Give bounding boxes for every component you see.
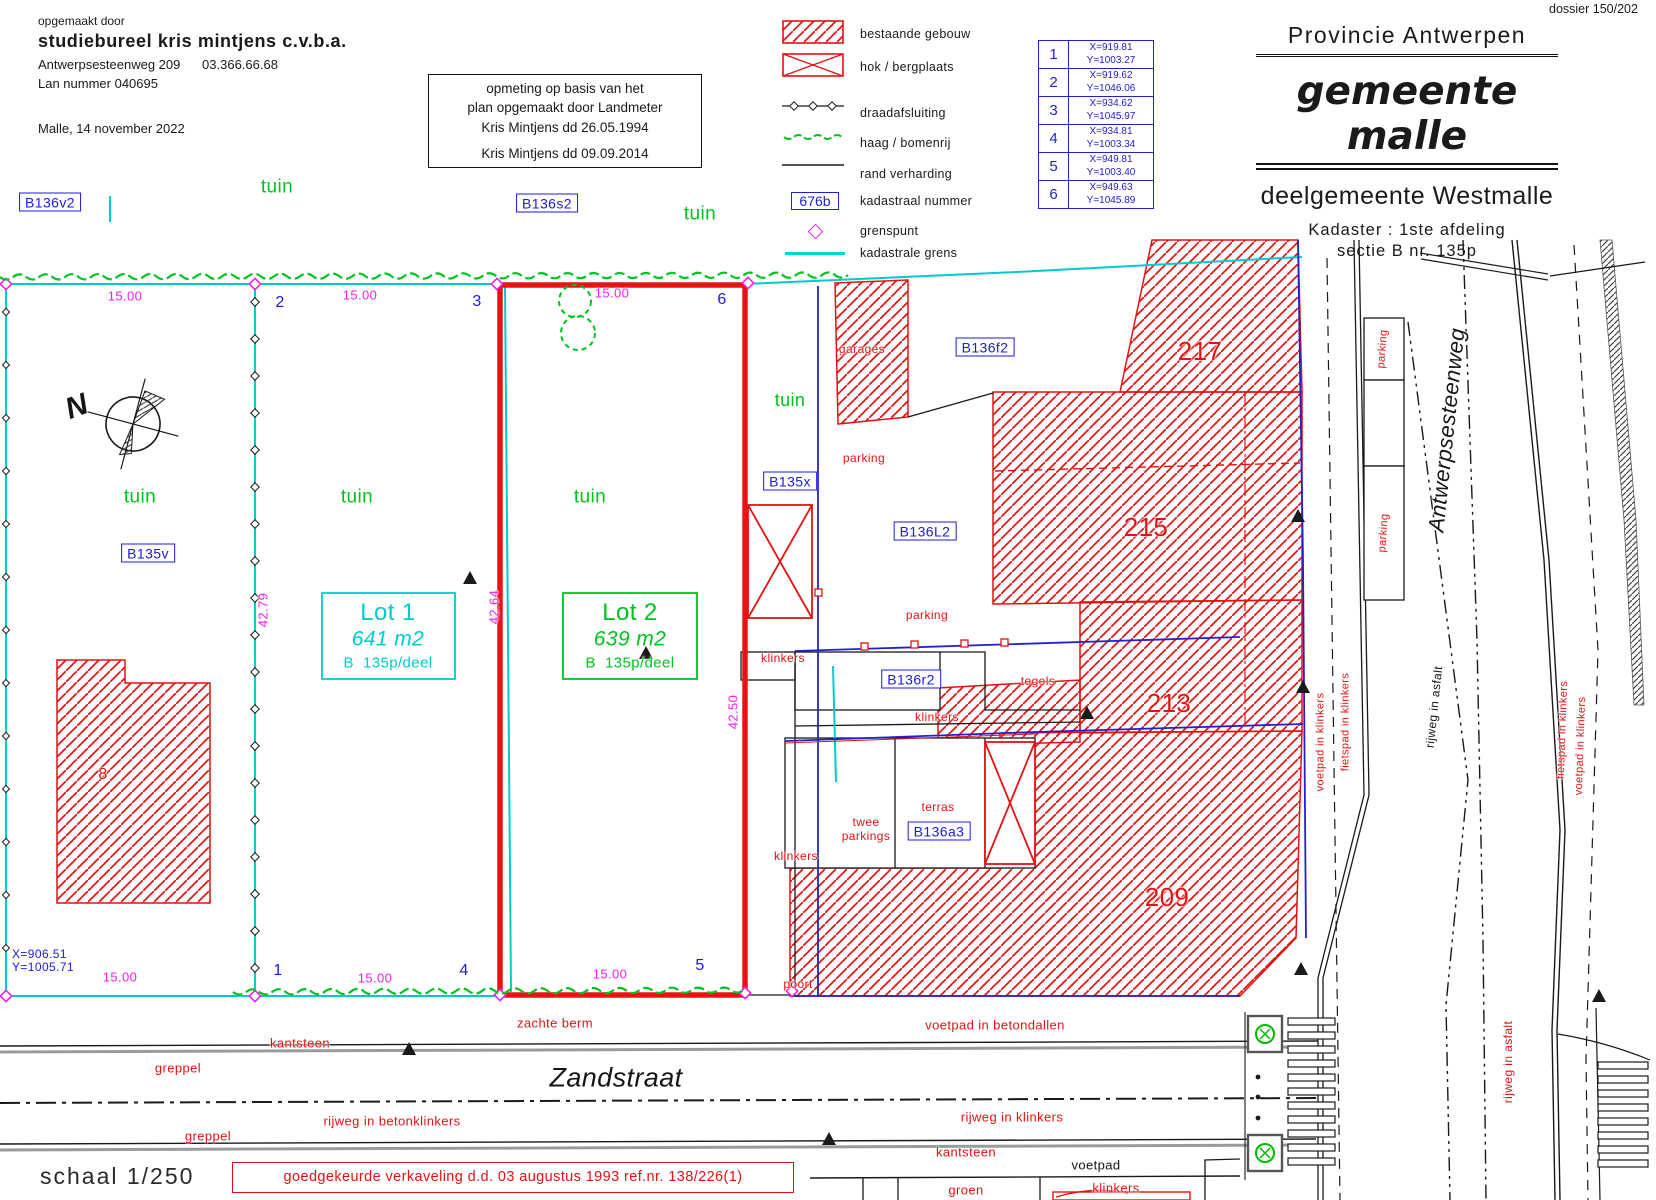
submunicipality-title: deelgemeente Westmalle xyxy=(1256,182,1558,211)
coord-y: Y=1003.40 xyxy=(1071,167,1151,180)
label-pt-4: 4 xyxy=(459,963,468,979)
coord-y: Y=1003.34 xyxy=(1071,139,1151,152)
label-b135v: B135v xyxy=(121,544,175,563)
wire-fence-mark xyxy=(2,785,9,792)
cadastral-line-symbol xyxy=(785,252,845,255)
label-dim-top-1: 15.00 xyxy=(108,290,143,303)
label-greppel-1: greppel xyxy=(155,1062,201,1075)
wire-fence-mark xyxy=(251,298,259,306)
point-number: 5 xyxy=(1039,153,1069,181)
coordinate-row: 5X=949.81Y=1003.40 xyxy=(1039,153,1154,181)
wire-fence-mark xyxy=(251,705,259,713)
crosswalk-bar xyxy=(1598,1062,1648,1069)
point-coordinates: X=949.63Y=1045.89 xyxy=(1069,181,1154,209)
coordinate-row: 3X=934.62Y=1045.97 xyxy=(1039,97,1154,125)
wire-fence-mark xyxy=(251,372,259,380)
label-pt-2: 2 xyxy=(275,295,284,311)
legend-item-hatched-box: bestaande gebouw xyxy=(782,20,970,48)
hatched-buildings xyxy=(57,240,1302,996)
label-nr-215: 215 xyxy=(1124,514,1169,540)
cadastre-line2: sectie B nr. 135p xyxy=(1256,242,1558,261)
label-pt-6: 6 xyxy=(717,292,726,308)
survey-note-box: opmeting op basis van het plan opgemaakt… xyxy=(428,74,702,168)
wire-fence-mark xyxy=(2,944,9,951)
label-tuin-parcel-left: tuin xyxy=(124,488,156,507)
crosswalk-bar xyxy=(1288,1144,1335,1151)
wire-fence-mark xyxy=(2,573,9,580)
point-coordinates: X=919.81Y=1003.27 xyxy=(1069,41,1154,69)
wire-fence-mark xyxy=(2,732,9,739)
cadastral-line-icon xyxy=(782,252,848,255)
author-address: Antwerpsesteenweg 209 03.366.66.68 xyxy=(38,57,347,72)
label-dim-4264: 42.64 xyxy=(488,590,501,625)
coordinate-row: 2X=919.62Y=1046.06 xyxy=(1039,69,1154,97)
wire-fence-mark xyxy=(2,626,9,633)
point-coordinates: X=934.62Y=1045.97 xyxy=(1069,97,1154,125)
label-dim-4279: 42.79 xyxy=(257,593,270,628)
crosswalk-bar xyxy=(1288,1130,1335,1137)
wire-fence-mark xyxy=(251,742,259,750)
coord-x: X=934.62 xyxy=(1071,98,1151,111)
label-voetpad-betondallen: voetpad in betondallen xyxy=(925,1019,1065,1032)
crosswalk-bar xyxy=(1288,1046,1335,1053)
wire-fence-mark xyxy=(251,520,259,528)
crosswalk-bar xyxy=(1288,1060,1335,1067)
label-klinkers-strip-1: klinkers xyxy=(761,652,805,664)
approval-note: goedgekeurde verkaveling d.d. 03 augustu… xyxy=(232,1162,794,1193)
crosswalk-bar xyxy=(1288,1158,1335,1165)
coord-x: X=919.81 xyxy=(1071,42,1151,55)
label-klinkers-bottom: klinkers xyxy=(1092,1182,1139,1195)
legend-item-cadastral-line: kadastrale grens xyxy=(782,239,957,267)
label-bldg-8: 8 xyxy=(98,767,107,783)
label-zachte-berm: zachte berm xyxy=(517,1017,593,1030)
coord-x: X=919.62 xyxy=(1071,70,1151,83)
label-nr-209: 209 xyxy=(1145,884,1190,910)
label-lot2-area: 639 m2 xyxy=(594,629,666,650)
label-lot2-parcel: B 135p/deel xyxy=(585,656,674,671)
parcel-number-example: 676b xyxy=(791,192,838,210)
wire-fence-mark xyxy=(251,668,259,676)
label-klinkers-yard: klinkers xyxy=(915,711,959,723)
coordinate-row: 4X=934.81Y=1003.34 xyxy=(1039,125,1154,153)
crosswalk-bar xyxy=(1288,1102,1335,1109)
author-intro: opgemaakt door xyxy=(38,14,347,28)
label-dim-top-3: 15.00 xyxy=(595,287,630,300)
dossier-number: dossier 150/202 xyxy=(1549,2,1656,16)
wire-fence-mark xyxy=(251,409,259,417)
label-nr-217: 217 xyxy=(1178,338,1223,364)
crosswalk-bar xyxy=(1598,1132,1648,1139)
wire-fence-mark xyxy=(251,927,259,935)
wire-fence-mark xyxy=(2,414,9,421)
point-coordinates: X=934.81Y=1003.34 xyxy=(1069,125,1154,153)
boundary-point-icon xyxy=(782,226,848,237)
label-kantsteen-left: kantsteen xyxy=(270,1037,330,1050)
legend-item-label: grenspunt xyxy=(860,224,918,238)
label-lot1-title: Lot 1 xyxy=(360,601,415,625)
legend-item-label: kadastrale grens xyxy=(860,246,957,260)
point-coordinates: X=919.62Y=1046.06 xyxy=(1069,69,1154,97)
legend-item-label: rand verharding xyxy=(860,167,952,181)
legend-item-edge-line: rand verharding xyxy=(782,160,952,188)
wire-fence-mark xyxy=(251,779,259,787)
wire-fence-mark xyxy=(2,679,9,686)
point-number: 1 xyxy=(1039,41,1069,69)
coord-y: Y=1045.97 xyxy=(1071,111,1151,124)
label-b136v2: B136v2 xyxy=(19,193,81,212)
crosswalk-bar xyxy=(1598,1118,1648,1125)
north-compass xyxy=(75,366,190,481)
wire-fence-mark xyxy=(251,483,259,491)
label-zandstraat: Zandstraat xyxy=(549,1065,682,1092)
label-greppel-2: greppel xyxy=(185,1130,231,1143)
point-number: 4 xyxy=(1039,125,1069,153)
label-b136s2: B136s2 xyxy=(516,194,578,213)
crosswalk-bar xyxy=(1598,1160,1648,1167)
coordinate-table: 1X=919.81Y=1003.272X=919.62Y=1046.063X=9… xyxy=(1038,40,1154,209)
legend-item-crossed-box: hok / bergplaats xyxy=(782,53,954,81)
label-parking-1: parking xyxy=(843,452,885,464)
legend-item-hedge-line: haag / bomenrij xyxy=(782,129,951,157)
legend-item-label: draadafsluiting xyxy=(860,106,946,120)
label-tuin-lot1: tuin xyxy=(341,488,373,507)
coord-y: Y=1045.89 xyxy=(1071,195,1151,208)
survey-note-line: plan opgemaakt door Landmeter xyxy=(429,98,701,118)
wire-fence-mark xyxy=(251,557,259,565)
author-company: studiebureel kris mintjens c.v.b.a. xyxy=(38,31,347,52)
label-voetpad: voetpad xyxy=(1071,1159,1120,1172)
coordinate-row: 1X=919.81Y=1003.27 xyxy=(1039,41,1154,69)
survey-note-line: opmeting op basis van het xyxy=(429,79,701,99)
author-license: Lan nummer 040695 xyxy=(38,76,347,91)
crosswalk-bar xyxy=(1598,1090,1648,1097)
label-twee: twee xyxy=(853,816,880,828)
crosswalk-bar xyxy=(1598,1104,1648,1111)
point-number: 6 xyxy=(1039,181,1069,209)
survey-note-line: Kris Mintjens dd 09.09.2014 xyxy=(429,144,701,164)
label-pt-5: 5 xyxy=(695,958,704,974)
label-lot1-parcel: B 135p/deel xyxy=(343,656,432,671)
label-dim-bot-3: 15.00 xyxy=(593,968,628,981)
label-fietspad-klinkers-left: fietspad in klinkers xyxy=(1341,673,1352,772)
author-block: opgemaakt door studiebureel kris mintjen… xyxy=(38,14,347,136)
crosswalk-bar xyxy=(1598,1146,1648,1153)
author-place-date: Malle, 14 november 2022 xyxy=(38,121,347,136)
title-block: Provincie Antwerpen gemeente malle deelg… xyxy=(1256,22,1558,261)
wire-fence-mark xyxy=(251,853,259,861)
legend-item-label: bestaande gebouw xyxy=(860,27,970,41)
hedge-top xyxy=(0,272,848,279)
municipality-title: gemeente malle xyxy=(1256,69,1558,170)
crosswalk-bar xyxy=(1288,1074,1335,1081)
label-tuin-top-left: tuin xyxy=(261,178,293,197)
label-lot1-area: 641 m2 xyxy=(352,629,424,650)
label-rijweg-klinkers: rijweg in klinkers xyxy=(961,1111,1064,1124)
label-poort: poort xyxy=(783,978,812,990)
label-b135x: B135x xyxy=(763,472,817,491)
label-klinkers-strip-2: klinkers xyxy=(774,850,818,862)
label-tuin-lot2: tuin xyxy=(574,488,606,507)
wire-fence-mark xyxy=(2,361,9,368)
legend-item-wire-line: draadafsluiting xyxy=(782,99,946,127)
label-coord-pt-x: X=906.51 xyxy=(12,948,67,960)
label-pt-1: 1 xyxy=(273,963,282,979)
label-tuin-top-mid: tuin xyxy=(684,205,716,224)
legend-item-parcel-box: 676bkadastraal nummer xyxy=(782,187,972,215)
label-terras: terras xyxy=(921,801,954,813)
crosswalk-bar xyxy=(1288,1032,1335,1039)
wire-fence-mark xyxy=(2,467,9,474)
label-tegels: tegels xyxy=(1021,675,1055,687)
wire-fence-mark xyxy=(251,964,259,972)
point-coordinates: X=949.81Y=1003.40 xyxy=(1069,153,1154,181)
label-b136f2: B136f2 xyxy=(956,338,1015,357)
wire-fence-mark xyxy=(2,838,9,845)
wire-fence-mark xyxy=(2,891,9,898)
label-b136l2: B136L2 xyxy=(894,522,957,541)
label-groen: groen xyxy=(948,1184,983,1197)
label-rijweg-asfalt-2: rijweg in asfalt xyxy=(1502,1021,1514,1103)
label-b136r2: B136r2 xyxy=(881,670,941,689)
label-dim-top-2: 15.00 xyxy=(343,289,378,302)
coord-x: X=934.81 xyxy=(1071,126,1151,139)
wire-fence-mark xyxy=(251,446,259,454)
coord-y: Y=1003.27 xyxy=(1071,55,1151,68)
coord-x: X=949.81 xyxy=(1071,154,1151,167)
coord-y: Y=1046.06 xyxy=(1071,83,1151,96)
label-dim-bot-1: 15.00 xyxy=(103,971,138,984)
point-number: 2 xyxy=(1039,69,1069,97)
cadastral-plan: opgemaakt door studiebureel kris mintjen… xyxy=(0,0,1656,1200)
coord-x: X=949.63 xyxy=(1071,182,1151,195)
cadastre-line1: Kadaster : 1ste afdeling xyxy=(1256,221,1558,240)
label-lot2-title: Lot 2 xyxy=(602,601,657,625)
scale-label: schaal 1/250 xyxy=(40,1163,194,1190)
parcel-box-icon: 676b xyxy=(782,192,848,210)
trees xyxy=(559,285,595,350)
legend-item-label: haag / bomenrij xyxy=(860,136,951,150)
label-garages: garages xyxy=(839,343,885,355)
wire-fence-mark xyxy=(251,335,259,343)
wire-fence-mark xyxy=(251,631,259,639)
wire-fence-mark xyxy=(251,816,259,824)
label-pt-3: 3 xyxy=(472,294,481,310)
label-dim-4250: 42.50 xyxy=(727,695,740,730)
point-number: 3 xyxy=(1039,97,1069,125)
label-coord-pt-y: Y=1005.71 xyxy=(12,961,74,973)
label-dim-bot-2: 15.00 xyxy=(358,972,393,985)
crosswalk-bar xyxy=(1288,1116,1335,1123)
crosswalk-bar xyxy=(1288,1088,1335,1095)
survey-note-line: Kris Mintjens dd 26.05.1994 xyxy=(429,118,701,138)
label-nr-213: 213 xyxy=(1147,690,1192,716)
label-parking-2: parking xyxy=(906,609,948,621)
legend-item-label: hok / bergplaats xyxy=(860,60,954,74)
crosswalk-bar xyxy=(1598,1076,1648,1083)
wire-fence-mark xyxy=(2,520,9,527)
label-kantsteen-right: kantsteen xyxy=(936,1146,996,1159)
traffic-symbols xyxy=(1248,1016,1282,1171)
label-rijweg-betonklinkers: rijweg in betonklinkers xyxy=(323,1115,460,1128)
wire-fence-mark xyxy=(251,890,259,898)
province-title: Provincie Antwerpen xyxy=(1256,22,1558,57)
label-tuin-strip: tuin xyxy=(775,391,806,409)
label-voetpad-klinkers-left: voetpad in klinkers xyxy=(1316,693,1327,792)
grenspunt-symbol xyxy=(807,223,823,239)
coordinate-row: 6X=949.63Y=1045.89 xyxy=(1039,181,1154,209)
label-parkings: parkings xyxy=(842,830,891,842)
legend-item-label: kadastraal nummer xyxy=(860,194,972,208)
wire-fence-mark xyxy=(2,308,9,315)
label-b136a3: B136a3 xyxy=(908,822,971,841)
crosswalk-bar xyxy=(1288,1018,1335,1025)
